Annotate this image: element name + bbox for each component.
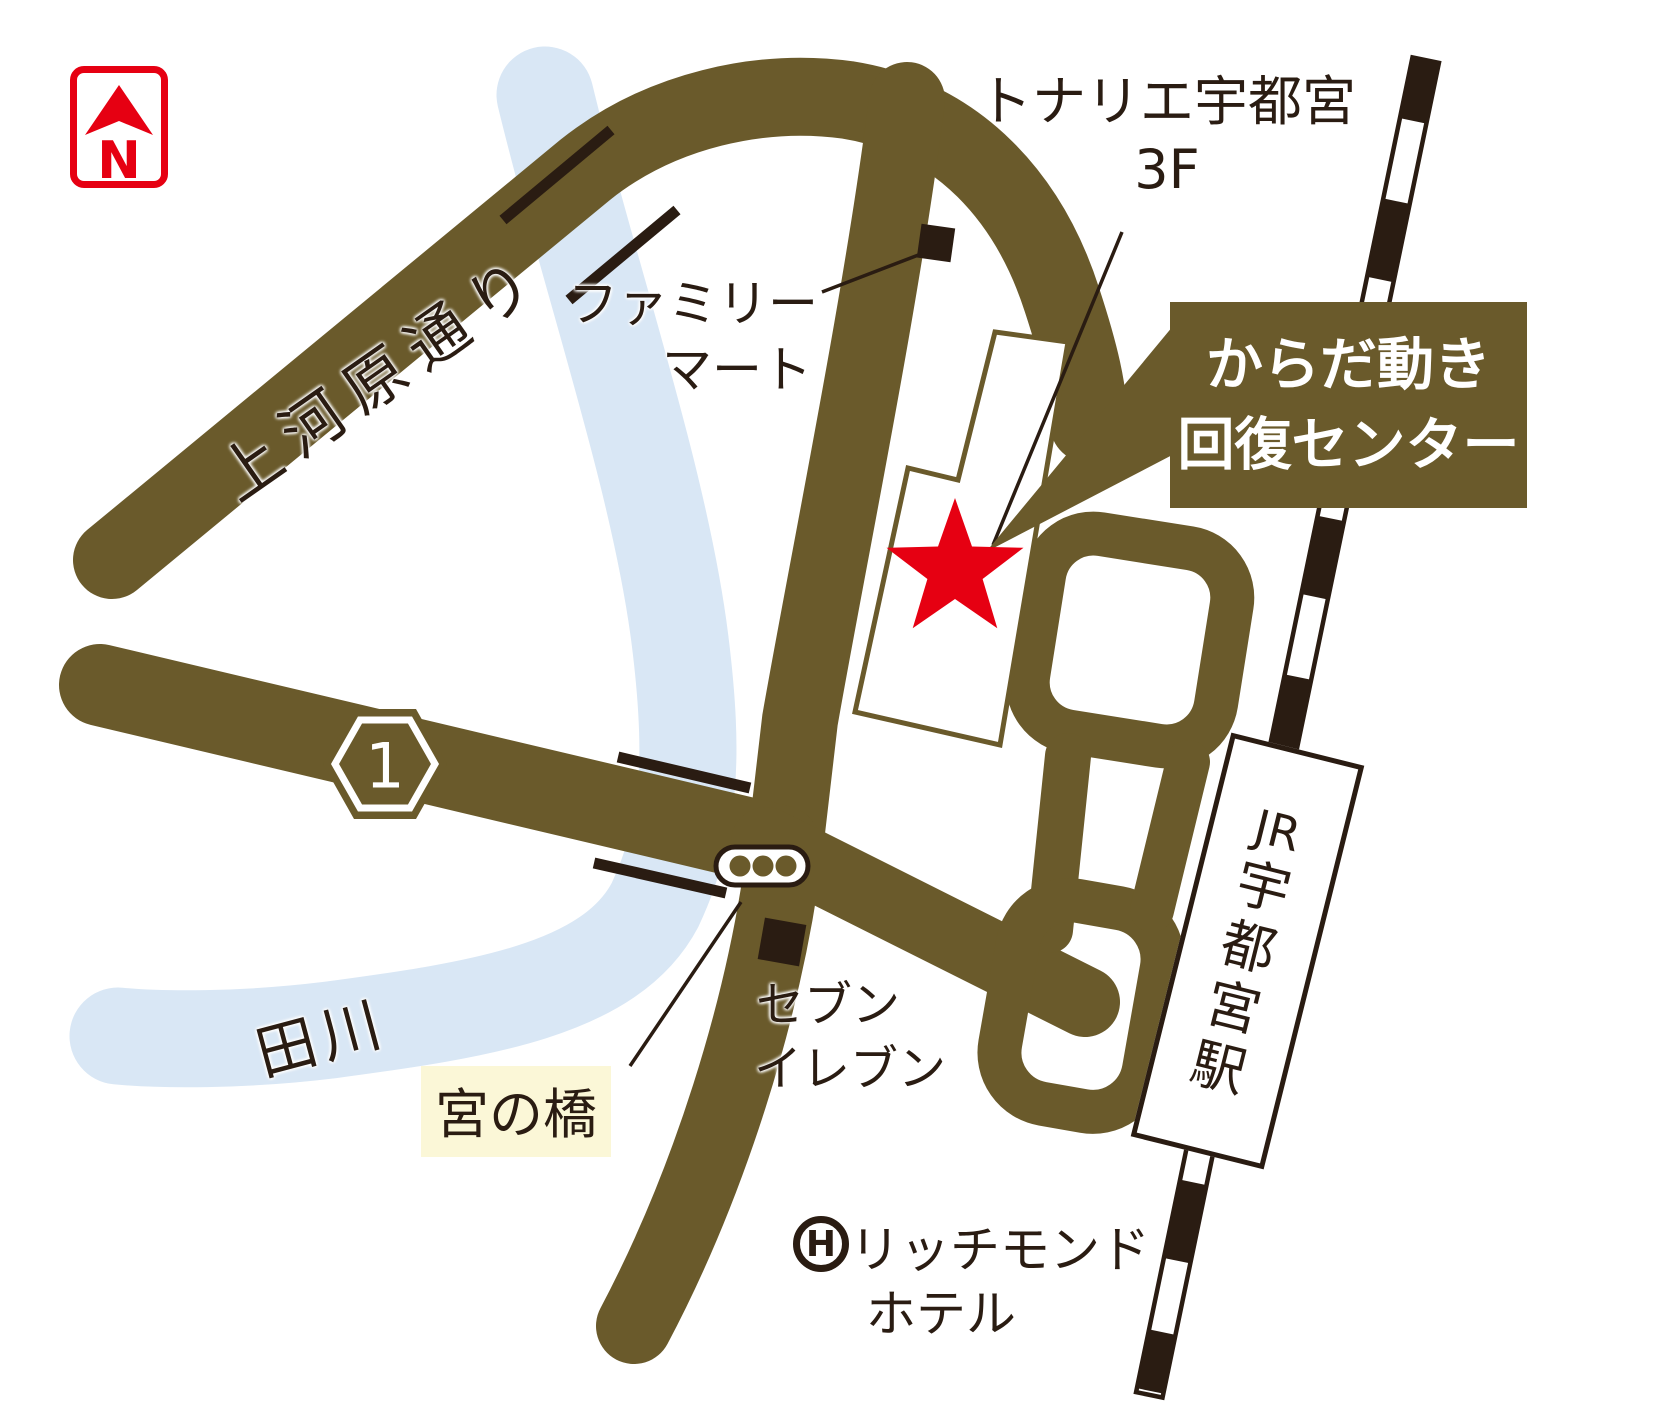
map-artwork (0, 0, 1654, 1417)
route-number-label: 1 (365, 730, 404, 803)
seveneleven-square-marker (758, 918, 807, 967)
callout-line2: 回復センター (1178, 405, 1520, 485)
station-front-upper-loop-road (1021, 526, 1240, 753)
north-letter: N (77, 131, 161, 191)
destination-callout: からだ動き 回復センター (1170, 302, 1527, 508)
tagawa-river (118, 95, 688, 1039)
miyanohashi-bridge-label: 宮の橋 (421, 1066, 611, 1157)
access-map: N 上河原通り ファミリー マート トナリエ宇都宮 3F からだ動き 回復センタ… (0, 0, 1654, 1417)
richmond-hotel-label-line2: ホテル (866, 1274, 1016, 1346)
north-compass-icon: N (70, 66, 168, 188)
hotel-mark-letter: H (806, 1224, 836, 1265)
tonarie-floor-label: 3F (1134, 139, 1199, 201)
station-char: 駅 (1185, 1032, 1252, 1105)
hotel-circle-h-icon: H (793, 1216, 849, 1272)
seveneleven-label-line1: セブン (756, 965, 900, 1035)
familymart-label-line2: マート (662, 330, 812, 402)
seveneleven-label-line2: イレブン (754, 1029, 946, 1099)
familymart-label-line1: ファミリー (568, 264, 818, 336)
callout-line1: からだ動き (1206, 325, 1491, 405)
familymart-square-marker (917, 224, 955, 262)
loop-riser-road (1152, 762, 1188, 910)
richmond-hotel-label-line1: リッチモンド (850, 1210, 1150, 1282)
tonarie-label: トナリエ宇都宮 (978, 71, 1356, 133)
traffic-light-icon (716, 847, 808, 885)
